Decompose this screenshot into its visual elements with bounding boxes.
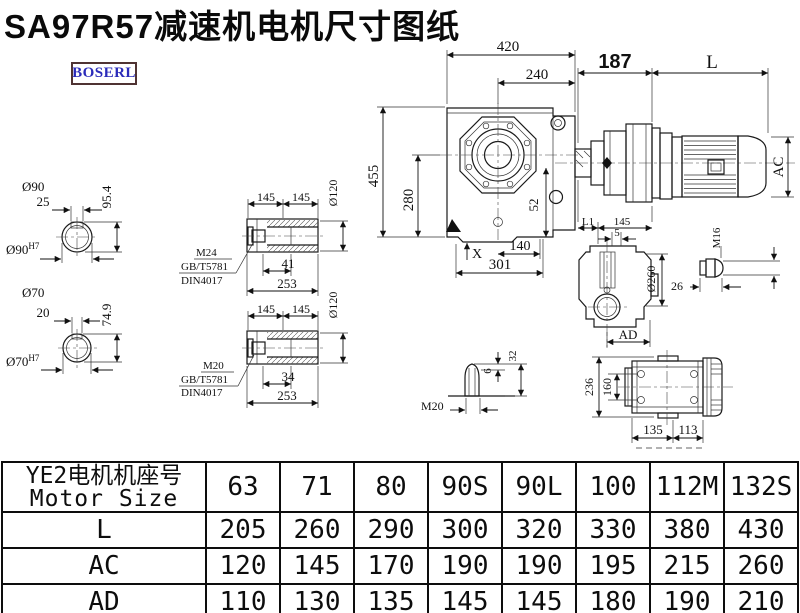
dimension-value: 145 (502, 584, 576, 613)
dimension-value: 180 (576, 584, 650, 613)
side-view-dia260: Ø260 (644, 266, 658, 293)
hollow-bottom-34: 34 (282, 369, 296, 384)
plug-thread-label: M20 (421, 399, 444, 413)
dimension-value: 210 (724, 584, 798, 613)
dimension-value: 380 (650, 512, 724, 548)
dimension-value: 170 (354, 548, 428, 584)
column-header: 63 (206, 462, 280, 512)
hollow-top-std-gb: GB/T5781 (181, 261, 228, 273)
dim-240-label: 240 (526, 67, 549, 83)
dimension-value: 190 (650, 584, 724, 613)
hollow-top-dia: Ø120 (326, 180, 340, 207)
column-header: 71 (280, 462, 354, 512)
top-view-236: 236 (582, 378, 596, 396)
side-view-L1: L1 (582, 216, 594, 228)
top-view: 236 160 135 113 (582, 350, 733, 448)
hollow-top-41: 41 (282, 256, 295, 271)
dim-L-label: L (706, 52, 718, 73)
dimension-value: 320 (502, 512, 576, 548)
hollow-bottom-145-left: 145 (257, 302, 275, 316)
hollow-bottom-std-gb: GB/T5781 (181, 374, 228, 386)
top-view-135: 135 (643, 422, 663, 437)
dimension-value: 145 (280, 548, 354, 584)
table-row-L: L 205 260 290 300 320 330 380 430 (2, 512, 798, 548)
plug-dim-6: 6 (482, 368, 494, 374)
shaft-90-key-height: 95.4 (99, 185, 114, 208)
dimension-value: 330 (576, 512, 650, 548)
dimension-value: 110 (206, 584, 280, 613)
bolt-dim-26: 26 (671, 279, 683, 293)
table-row-AD: AD 110 130 135 145 145 180 190 210 (2, 584, 798, 613)
technical-drawing: 420 240 187 L 455 280 52 X 140 301 (0, 0, 800, 460)
hollow-top-253: 253 (277, 276, 297, 291)
column-header: 100 (576, 462, 650, 512)
dim-280-label: 280 (401, 189, 417, 212)
dimension-value: 430 (724, 512, 798, 548)
hollow-top-145-right: 145 (292, 190, 310, 204)
table-header-row: YE2电机机座号 Motor Size 63 71 80 90S 90L 100… (2, 462, 798, 512)
dimension-value: 290 (354, 512, 428, 548)
hollow-shaft-detail-bottom: 145 145 Ø120 M20 GB/T5781 DIN4017 34 253 (179, 292, 348, 408)
row-label: L (2, 512, 206, 548)
column-header: 90L (502, 462, 576, 512)
table-row-AC: AC 120 145 170 190 190 195 215 260 (2, 548, 798, 584)
front-view-dimensions: 420 240 187 L 455 280 52 X 140 301 (366, 39, 794, 278)
column-header: 90S (428, 462, 502, 512)
shaft-section-90: Ø90 25 95.4 Ø90H7 (6, 179, 122, 263)
hollow-bottom-145-right: 145 (292, 302, 310, 316)
shaft-70-fit-label: Ø70H7 (6, 353, 40, 369)
row-label: AC (2, 548, 206, 584)
row-label: AD (2, 584, 206, 613)
column-header: 80 (354, 462, 428, 512)
shaft-90-key-width: 25 (37, 194, 50, 209)
side-view: L1 145 5 Ø260 AD (578, 216, 668, 348)
hollow-bottom-std-din: DIN4017 (181, 387, 223, 399)
side-view-5: 5 (614, 227, 620, 239)
header-cn: YE2电机机座号 (3, 464, 205, 488)
shaft-90-fit-label: Ø90H7 (6, 241, 40, 257)
hollow-bottom-thread: M20 (203, 360, 224, 372)
top-view-113: 113 (678, 422, 697, 437)
hollow-top-thread: M24 (196, 247, 217, 259)
shaft-90-dia-label: Ø90 (22, 179, 44, 194)
dim-455-label: 455 (366, 165, 382, 188)
dim-140-label: 140 (510, 239, 531, 254)
column-header: 112M (650, 462, 724, 512)
plug-detail-m20: M20 6 32 (421, 351, 527, 415)
shaft-70-key-width: 20 (37, 305, 50, 320)
dimension-value: 195 (576, 548, 650, 584)
motor-size-table: YE2电机机座号 Motor Size 63 71 80 90S 90L 100… (1, 461, 799, 613)
dimension-value: 260 (724, 548, 798, 584)
dim-420-label: 420 (497, 39, 520, 55)
table-header-motor-size: YE2电机机座号 Motor Size (2, 462, 206, 512)
dimension-value: 190 (428, 548, 502, 584)
dimension-value: 300 (428, 512, 502, 548)
x-mark-label: X (472, 247, 482, 262)
dimension-value: 130 (280, 584, 354, 613)
bolt-detail-m16: M16 26 (671, 227, 780, 293)
side-view-AD: AD (619, 327, 638, 342)
dim-301-label: 301 (489, 257, 512, 273)
column-header: 132S (724, 462, 798, 512)
hollow-bottom-253: 253 (277, 388, 297, 403)
shaft-70-dia-label: Ø70 (22, 285, 44, 300)
dimension-value: 190 (502, 548, 576, 584)
dimension-value: 135 (354, 584, 428, 613)
dimension-value: 120 (206, 548, 280, 584)
hollow-top-std-din: DIN4017 (181, 275, 223, 287)
drawing-sheet: SA97R57减速机电机尺寸图纸 BOSERL (0, 0, 800, 613)
dim-AC-label: AC (771, 157, 787, 178)
dim-187-label: 187 (598, 51, 631, 73)
shaft-section-70: Ø70 20 74.9 Ø70H7 (6, 285, 122, 374)
hollow-bottom-dia: Ø120 (326, 292, 340, 319)
top-view-160: 160 (600, 378, 614, 396)
hollow-top-145-left: 145 (257, 190, 275, 204)
plug-dim-32: 32 (507, 351, 519, 362)
dimension-value: 260 (280, 512, 354, 548)
dimension-value: 145 (428, 584, 502, 613)
dimension-value: 215 (650, 548, 724, 584)
dimension-value: 205 (206, 512, 280, 548)
header-en: Motor Size (3, 488, 205, 510)
dim-52-label: 52 (526, 199, 541, 212)
bolt-thread-label: M16 (711, 227, 723, 248)
shaft-70-key-height: 74.9 (99, 304, 114, 327)
hollow-shaft-detail-top: 145 145 Ø120 M24 GB/T5781 DIN4017 41 253 (179, 180, 348, 296)
